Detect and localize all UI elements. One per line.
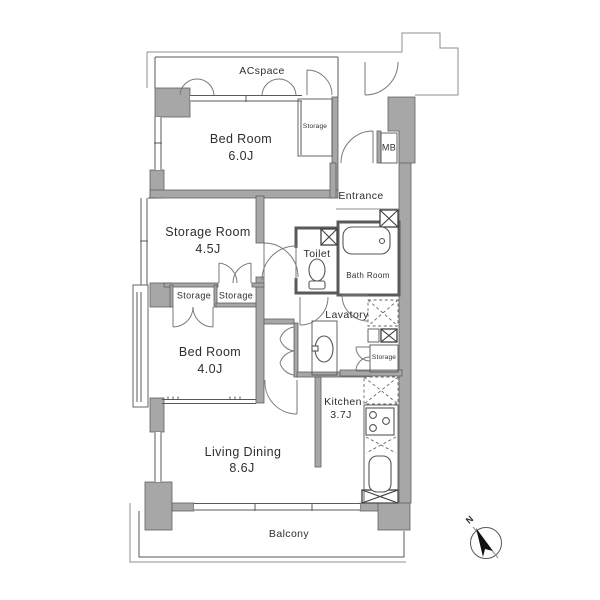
label-living-name: Living Dining xyxy=(205,446,282,459)
outer-outline xyxy=(147,33,458,97)
label-balcony: Balcony xyxy=(269,529,309,540)
label-lavatory-storage: Storage xyxy=(372,355,396,362)
living-door xyxy=(265,380,297,414)
porch-door xyxy=(365,62,398,95)
acspace-window-swing-right xyxy=(262,79,296,95)
label-acspace: ACspace xyxy=(239,66,284,77)
label-kitchen-name: Kitchen xyxy=(324,397,362,408)
label-living-size: 8.6J xyxy=(229,462,254,475)
kitchen-sink xyxy=(369,456,391,492)
label-hall-storage-left: Storage xyxy=(177,292,211,301)
label-storage-room-name: Storage Room xyxy=(165,226,250,239)
floor-plan: ACspace Bed Room 6.0J Storage MB Entranc… xyxy=(0,0,600,600)
vestibule-door-lower xyxy=(280,351,294,375)
label-hall-storage-right: Storage xyxy=(219,292,253,301)
label-bedroom1-name: Bed Room xyxy=(210,133,272,146)
label-bedroom2-size: 4.0J xyxy=(197,363,222,376)
label-bedroom1-storage: Storage xyxy=(303,124,327,131)
compass-needle xyxy=(476,528,493,557)
storage-room-door xyxy=(264,243,298,277)
toilet-tank xyxy=(309,281,325,289)
label-kitchen-size: 3.7J xyxy=(330,410,351,421)
label-storage-room-size: 4.5J xyxy=(195,243,220,256)
toilet-bowl xyxy=(309,259,325,281)
kitchen-counter xyxy=(364,405,398,503)
floor-plan-drawing xyxy=(0,0,600,600)
toilet-door xyxy=(262,246,296,280)
hall-closet-left-doors xyxy=(173,307,213,327)
label-entrance: Entrance xyxy=(338,191,383,202)
lavatory-storage-doors xyxy=(356,347,370,371)
sliding-partition xyxy=(162,397,256,404)
label-lavatory: Lavatory xyxy=(325,310,368,321)
basin-faucet xyxy=(312,346,318,351)
vestibule-door-upper xyxy=(280,327,294,351)
compass xyxy=(471,527,502,559)
label-bath-room: Bath Room xyxy=(346,272,390,280)
label-bedroom2-name: Bed Room xyxy=(179,346,241,359)
hall-closet-right-doors xyxy=(219,263,251,283)
label-bedroom1-size: 6.0J xyxy=(228,150,253,163)
acspace-door xyxy=(307,70,332,95)
label-meter-box: MB xyxy=(382,144,396,153)
label-toilet: Toilet xyxy=(304,249,331,260)
front-door xyxy=(341,131,373,163)
